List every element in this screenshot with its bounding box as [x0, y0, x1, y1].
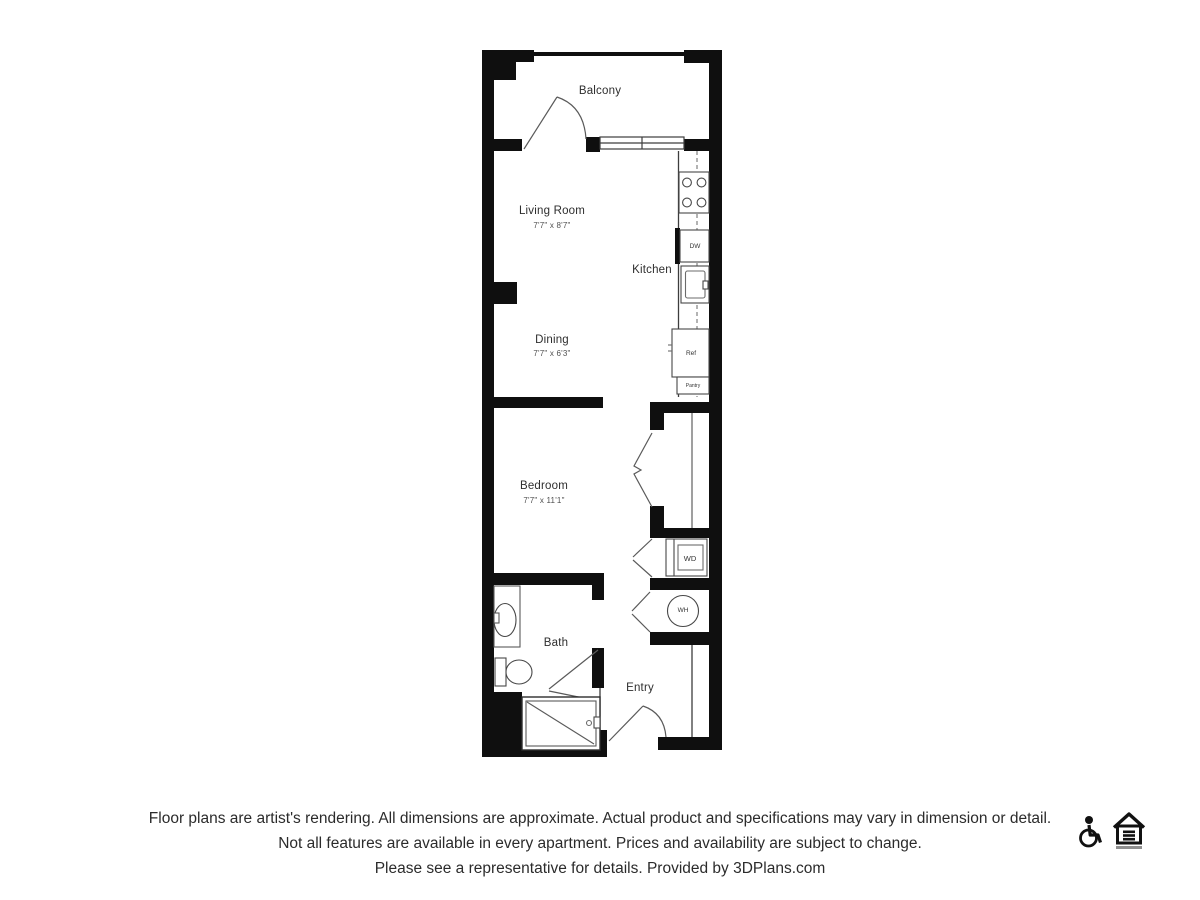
shower-icon: [522, 697, 600, 750]
balcony-label: Balcony: [579, 85, 621, 97]
entry-door-swing: [609, 706, 666, 741]
wall-left: [482, 50, 494, 757]
wall-bedroom-bath: [494, 573, 604, 585]
sliding-window: [600, 137, 684, 149]
dining-label: Dining: [535, 334, 569, 346]
balcony-door-swing: [524, 97, 586, 149]
equal-housing-icon: [1112, 812, 1146, 852]
wall-wd-wh: [650, 578, 709, 590]
toilet-icon: [495, 658, 532, 686]
living-room-label: Living Room: [519, 205, 585, 217]
disclaimer-line-3: Please see a representative for details.…: [0, 856, 1200, 881]
living-room-dims: 7'7" x 8'7": [533, 221, 570, 230]
bath-label: Bath: [544, 637, 568, 649]
wall-closet-mid-stub: [650, 506, 664, 530]
disclaimer-line-2: Not all features are available in every …: [0, 831, 1200, 856]
kitchen-fixtures: [668, 172, 709, 394]
equal-housing-caption: [1116, 846, 1142, 849]
kitchen-label: Kitchen: [632, 264, 672, 276]
bedroom-dims: 7'7" x 11'1": [523, 496, 564, 505]
refrigerator-label: Ref: [686, 350, 696, 357]
bath-door: [549, 650, 598, 701]
wd-closet-door: [633, 539, 652, 577]
floorplan-page: Balcony Living Room 7'7" x 8'7" Kitchen …: [0, 0, 1200, 900]
wall-left-protrusion: [482, 282, 517, 304]
stove-icon: [679, 172, 709, 213]
wall-closet-wd: [650, 528, 709, 538]
wall-bottom-left-block: [482, 692, 522, 757]
wall-door-hinge-block: [586, 137, 600, 152]
wheelchair-accessible-icon: [1076, 815, 1106, 848]
dining-dims: 7'7" x 6'3": [533, 349, 570, 358]
wh-closet-door: [632, 592, 650, 632]
dishwasher-label: DW: [690, 243, 701, 250]
kitchen-sink-icon: [681, 266, 709, 303]
disclaimer-text: Floor plans are artist's rendering. All …: [0, 806, 1200, 881]
vanity-sink-icon: [494, 586, 520, 647]
wall-wh-entry: [650, 632, 709, 645]
water-heater-label: WH: [678, 607, 689, 614]
wall-right: [709, 50, 722, 750]
balcony-railing: [534, 52, 684, 56]
wall-bath-corner-stub: [592, 585, 604, 600]
pantry-label: Pantry: [686, 383, 700, 389]
walls: [482, 50, 722, 757]
wall-balcony-divider-left: [482, 139, 522, 151]
wall-entry-bottom: [658, 737, 722, 750]
washer-dryer-label: WD: [684, 554, 697, 563]
wall-dining-bedroom: [494, 397, 603, 408]
wall-top-left-block: [482, 50, 516, 80]
wall-closet-top-stub: [650, 402, 664, 430]
wall-balcony-divider-right: [684, 139, 709, 151]
bedroom-label: Bedroom: [520, 480, 568, 492]
floorplan-drawing: [470, 40, 740, 765]
entry-label: Entry: [626, 682, 654, 694]
disclaimer-line-1: Floor plans are artist's rendering. All …: [0, 806, 1200, 831]
bedroom-closet-bifold-door: [634, 433, 652, 507]
